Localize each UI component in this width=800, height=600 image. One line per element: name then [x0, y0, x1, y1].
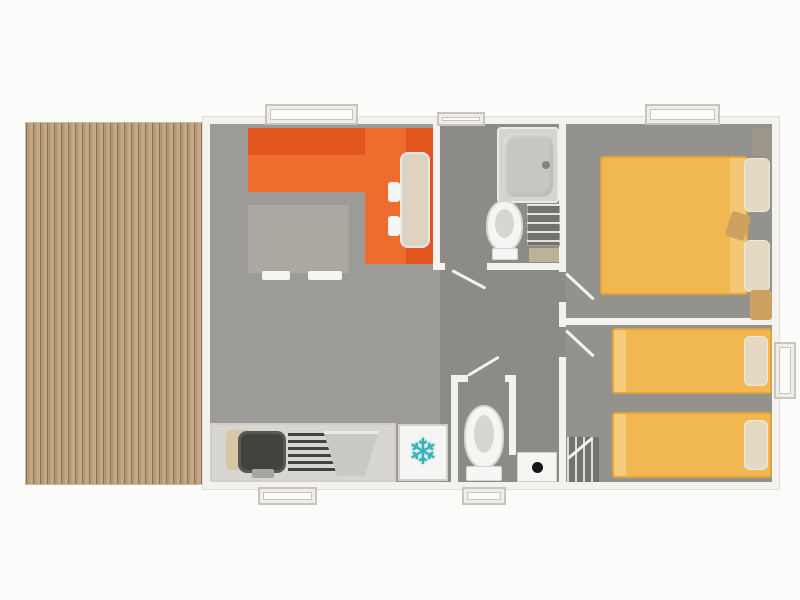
step-tread: [467, 492, 501, 500]
pillow: [744, 240, 770, 292]
step-tread: [263, 492, 312, 500]
washing-machine: [517, 452, 557, 482]
entry-step-wc: [462, 487, 506, 505]
coffee-table: [248, 205, 349, 273]
wall-bath-bottom-right: [487, 263, 566, 270]
shower: [497, 127, 559, 203]
nightstand: [752, 128, 772, 156]
kitchen-sink: [238, 431, 286, 473]
wall-living-bath: [433, 124, 440, 270]
snowflake-icon: ❄: [408, 435, 438, 471]
wc-toilet-base: [466, 466, 502, 481]
wall-wc-top-right: [505, 375, 516, 382]
table-leg: [388, 216, 400, 236]
pillow: [744, 158, 770, 212]
bathroom-mat: [529, 248, 559, 262]
window-bedroom-double: [645, 104, 720, 125]
entry-step-kitchen: [258, 487, 317, 505]
window-pane: [779, 347, 791, 394]
wall-wc-top-left: [451, 375, 468, 382]
stool: [262, 271, 290, 280]
terrace-deck: [25, 122, 203, 485]
fridge: ❄: [398, 424, 448, 481]
washer-door-icon: [532, 462, 543, 473]
window-pane: [650, 109, 715, 120]
window-pane: [270, 109, 353, 120]
bathroom-toilet: [486, 200, 523, 252]
wc-toilet: [464, 405, 504, 469]
toilet-base: [492, 248, 518, 260]
wall-wc-left: [451, 375, 458, 482]
bathroom-shelves: [527, 204, 560, 246]
dinette-table: [400, 152, 430, 248]
window-bedroom-twin: [774, 342, 796, 399]
wall-hall-segment: [559, 263, 566, 272]
toilet-seat: [474, 415, 494, 453]
shower-drain-icon: [542, 161, 550, 169]
window-hall: [437, 112, 485, 126]
wall-between-bedrooms: [559, 318, 772, 325]
pillow: [744, 336, 768, 386]
stool: [308, 271, 342, 280]
pillow: [744, 420, 768, 470]
faucet: [252, 469, 274, 478]
room-hallway-wc: [440, 263, 566, 482]
wall-bath-bottom-left: [433, 263, 445, 270]
table-leg: [388, 182, 400, 202]
wall-bath-bedroom: [559, 124, 566, 263]
window-pane: [442, 117, 480, 121]
double-bed: [600, 156, 748, 295]
wall-wc-right: [509, 382, 516, 455]
toilet-seat: [495, 209, 514, 238]
window-living: [265, 104, 358, 125]
wall-hall-segment: [559, 357, 566, 482]
bedroom-bench: [750, 290, 772, 320]
floorplan-canvas: ❄: [0, 0, 800, 600]
